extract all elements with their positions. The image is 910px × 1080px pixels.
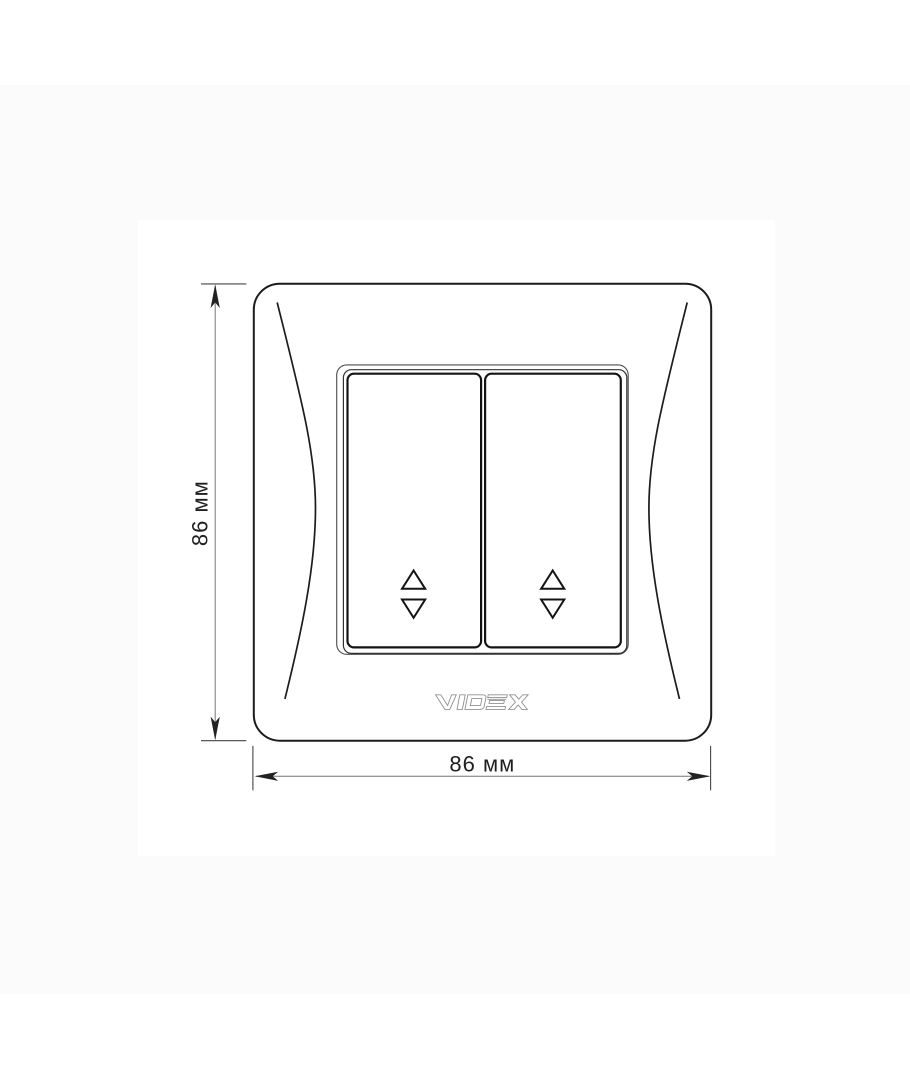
- svg-text:86 мм: 86 мм: [449, 751, 515, 776]
- svg-text:86 мм: 86 мм: [187, 480, 212, 546]
